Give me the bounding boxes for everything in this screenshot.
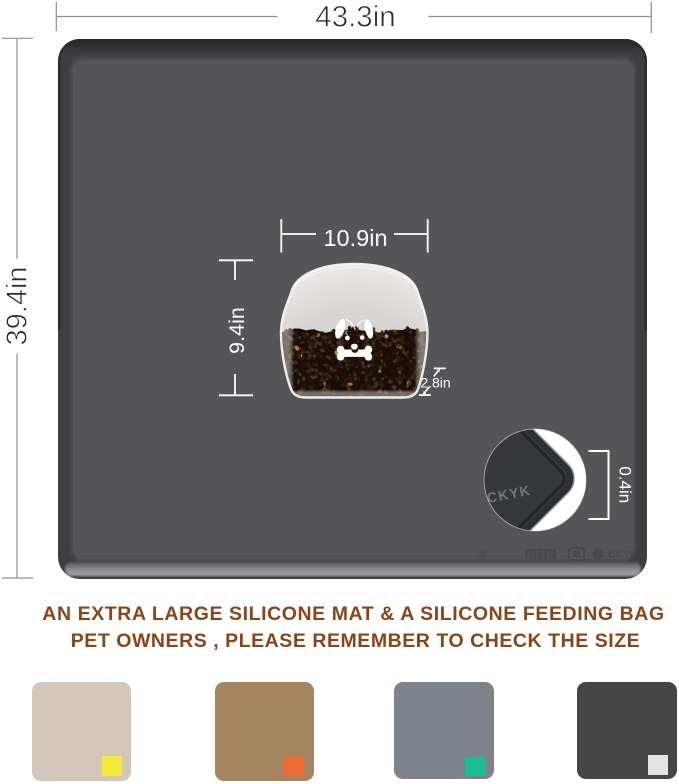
svg-text:CKYK: CKYK <box>608 550 638 561</box>
svg-text:10.9in: 10.9in <box>323 225 387 251</box>
svg-text:39.4in: 39.4in <box>2 266 34 345</box>
svg-text:0.4in: 0.4in <box>616 466 635 503</box>
svg-text:43.3in: 43.3in <box>315 1 395 34</box>
svg-text:9.4in: 9.4in <box>225 307 249 354</box>
svg-text:2.8in: 2.8in <box>420 375 450 391</box>
